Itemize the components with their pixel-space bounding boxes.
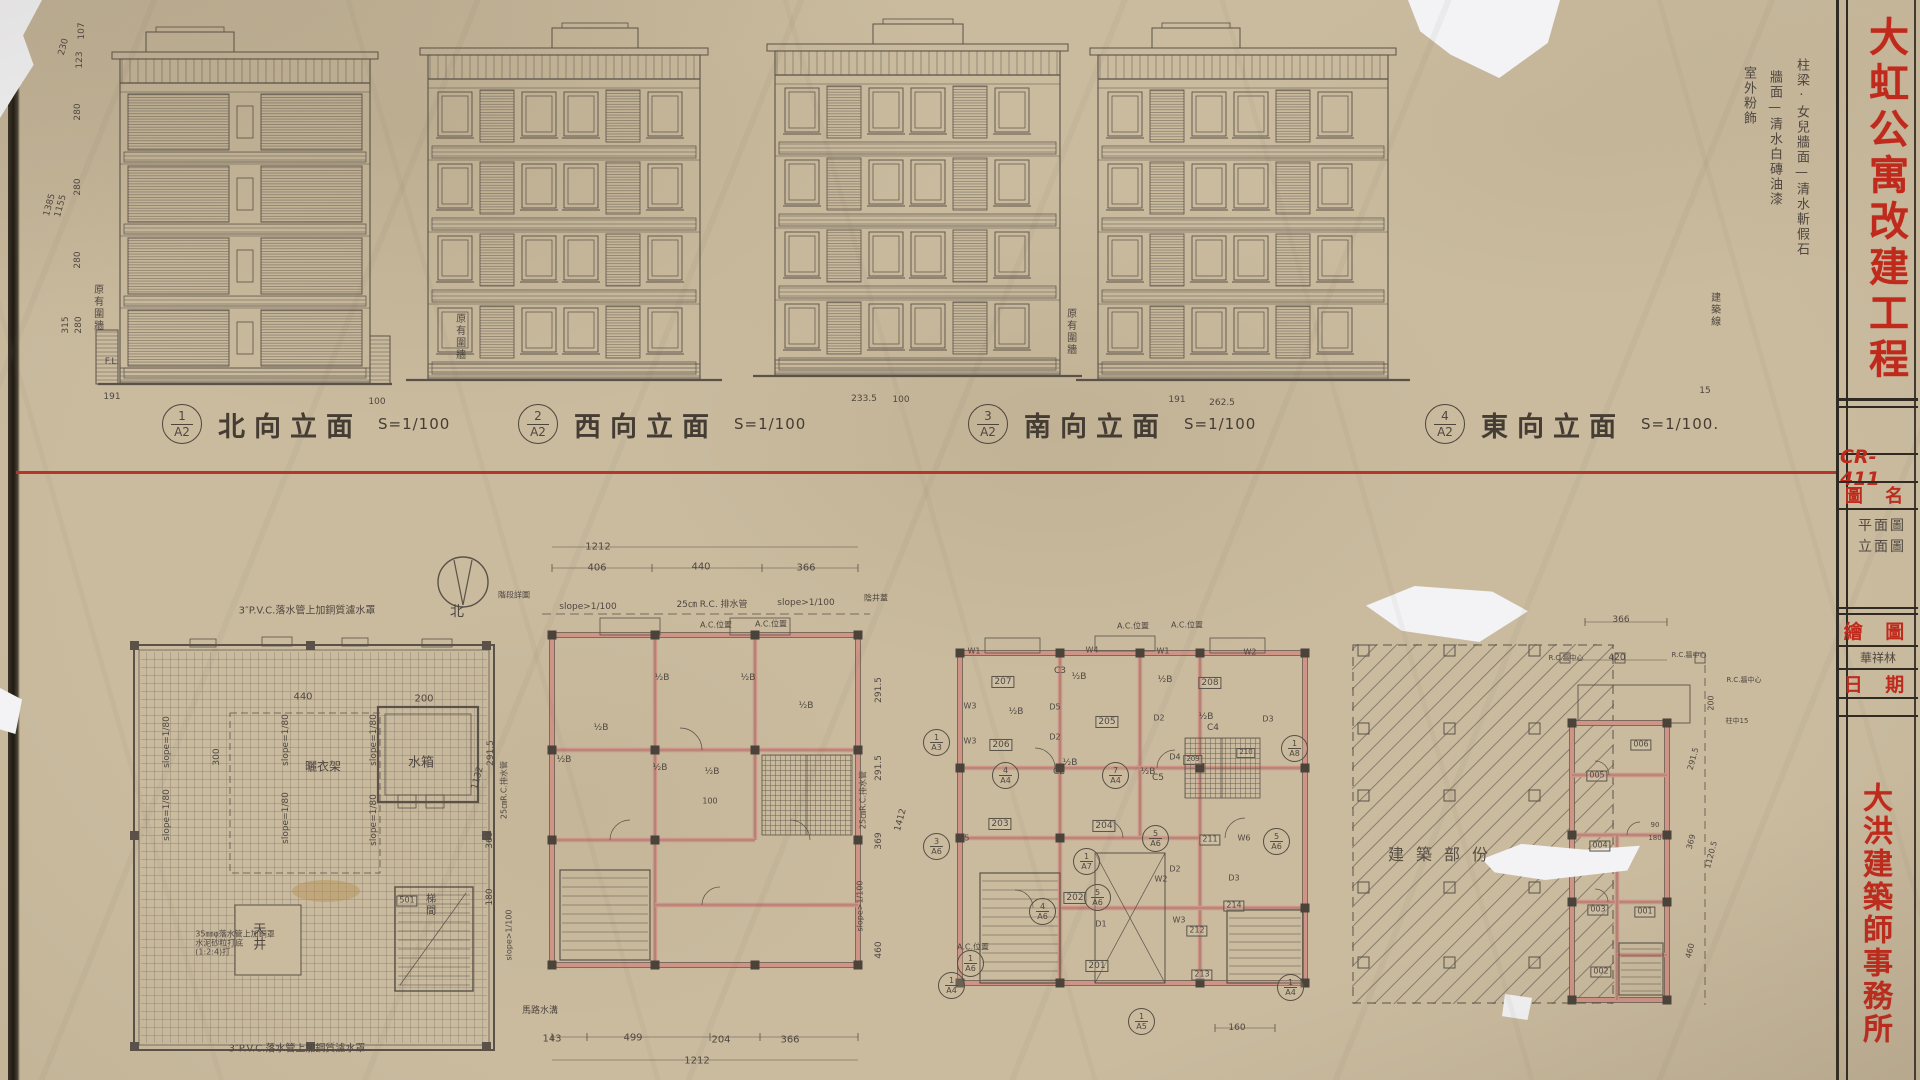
dim-under-elev: 100: [892, 395, 909, 405]
ac-label: A.C.位置: [755, 621, 787, 630]
slope-label: slope>1/100: [506, 909, 515, 960]
wall-mark: ½B: [653, 763, 668, 773]
dim-plan5: 420: [1608, 653, 1625, 663]
roof-note: 3″P.V.C.落水管上加銅質濾水罩: [239, 605, 376, 616]
wall-mark: ½B: [799, 701, 814, 711]
slope-label: slope>1/100: [777, 598, 834, 608]
slope-label: slope>1/100: [559, 602, 616, 612]
window-label: W5: [957, 835, 970, 844]
room-number: 002: [1590, 967, 1611, 978]
dim-plan5: 180: [1648, 835, 1661, 843]
north-label: 北: [450, 605, 464, 621]
ref-marker: 1A4: [1277, 974, 1304, 1001]
rc-note: 柱中15: [1726, 718, 1749, 726]
room-label: 曬衣架: [305, 760, 341, 773]
ref-marker: 5A6: [1084, 884, 1111, 911]
detail-note: 階段詳圖: [498, 592, 530, 601]
dim-left: 280: [73, 178, 83, 195]
ref-marker: 1A7: [1073, 848, 1100, 875]
door-label: D2: [1153, 715, 1164, 724]
annotations-layer: 10723012328028013851155280315280F.L.原有圍牆…: [0, 0, 1920, 1080]
dim-chain: 369: [485, 831, 495, 848]
ac-label: A.C.位置: [1171, 622, 1203, 631]
dim-plan2: 143: [542, 1033, 561, 1044]
room-number: 205: [1095, 716, 1118, 728]
dim-left: 230: [57, 37, 71, 56]
room-number: 003: [1587, 905, 1608, 916]
room-number: 209: [1183, 755, 1202, 765]
door-label: D4: [1169, 754, 1180, 763]
closet-label: C2: [1053, 767, 1065, 777]
dim-chain: 291.5: [874, 677, 884, 703]
note-building-line: 建築線: [1708, 292, 1719, 328]
room-label: 水箱: [408, 757, 434, 772]
dim-plan5: 366: [1612, 615, 1629, 625]
room-number: 001: [1634, 907, 1655, 918]
dim-plan5: 200: [1708, 695, 1717, 710]
dim-left: 280: [73, 103, 83, 120]
slope-label: slope=1/80: [281, 714, 291, 766]
window-label: W2: [1155, 876, 1168, 885]
ref-marker: 1A8: [1281, 735, 1308, 762]
dim-plan3: 160: [1228, 1023, 1245, 1033]
dim-under-elev: 191: [103, 392, 120, 402]
room-number: 212: [1186, 926, 1207, 937]
dim-chain: 1132: [470, 766, 486, 791]
dim-chain: 369: [874, 832, 884, 849]
ref-marker: 1A5: [1128, 1008, 1155, 1035]
rc-note: R.C.牆中心: [1727, 677, 1762, 685]
ref-marker: 4A6: [1029, 898, 1056, 925]
slope-label: slope=1/80: [162, 789, 172, 841]
blueprint-sheet: 1 A2 北向立面 S=1/100 2 A2 西向立面 S=1/100 3 A2…: [0, 0, 1920, 1080]
roof-dim: 440: [293, 691, 312, 702]
dim-plan5: 460: [1685, 942, 1698, 959]
window-label: W1: [1157, 648, 1170, 657]
area-label: 建築部份: [1388, 846, 1500, 864]
room-number: 204: [1092, 820, 1115, 832]
ref-marker: 1A6: [957, 950, 984, 977]
wall-mark: ½B: [1072, 672, 1087, 682]
door-label: D3: [1262, 716, 1273, 725]
room-number: 203: [988, 818, 1011, 830]
slope-label: slope=1/80: [369, 794, 379, 846]
gutter-note: 馬路水溝: [522, 1006, 558, 1016]
room-number: 201: [1085, 960, 1108, 972]
door-label: D3: [1228, 875, 1239, 884]
slope-label: slope=1/80: [281, 792, 291, 844]
wall-mark: ½B: [655, 673, 670, 683]
wall-mark: ½B: [741, 673, 756, 683]
ac-label: A.C.位置: [700, 622, 732, 631]
wall-mark: ½B: [1158, 675, 1173, 685]
ref-marker: 1A3: [923, 729, 950, 756]
window-label: W6: [1238, 835, 1251, 844]
roof-note: 35㎜φ落水管上加銅罩 水泥砂粒打底 (1:2:4)打: [195, 931, 274, 958]
dim-left: 280: [74, 316, 84, 333]
ref-marker: 1A4: [938, 972, 965, 999]
room-number: 206: [989, 739, 1012, 751]
room-number: 214: [1223, 901, 1244, 912]
dim-chain: 291.5: [486, 740, 496, 766]
dim-under-elev: 191: [1168, 395, 1185, 405]
door-label: D2: [1169, 866, 1180, 875]
wall-mark: ½B: [1009, 707, 1024, 717]
slope-label: slope=1/80: [162, 716, 172, 768]
note-existing-wall: 原有圍牆: [91, 284, 102, 332]
rc-note: R.C.牆中心: [1672, 652, 1707, 660]
door-label: D2: [1049, 734, 1060, 743]
wall-mark: ½B: [705, 767, 720, 777]
dim-left: 315: [61, 316, 71, 333]
dim-plan5: 1120.5: [1704, 840, 1720, 869]
room-number: 006: [1630, 740, 1651, 751]
dim-plan2: 366: [780, 1034, 799, 1045]
roof-dim: 300: [212, 748, 222, 765]
room-label: 501: [396, 896, 417, 907]
ac-label: A.C.位置: [1117, 623, 1149, 632]
window-label: W3: [1173, 917, 1186, 926]
level-label: F.L.: [105, 357, 119, 367]
dim-plan2: 440: [691, 561, 710, 572]
ref-marker: 4A4: [992, 762, 1019, 789]
wall-mark: ½B: [1063, 758, 1078, 768]
window-label: W2: [1244, 649, 1257, 658]
note-existing-wall: 原有圍牆: [453, 313, 464, 361]
room-number: 005: [1586, 771, 1607, 782]
ref-marker: 5A6: [1263, 828, 1290, 855]
closet-label: C4: [1207, 723, 1219, 733]
wall-mark: ½B: [557, 755, 572, 765]
dim-plan2: 366: [796, 562, 815, 573]
dim-under-elev: 262.5: [1209, 398, 1235, 408]
drain-note: 25㎝R.C.排水管: [501, 761, 510, 819]
roof-dim: 200: [414, 693, 433, 704]
window-label: W1: [968, 648, 981, 657]
dim-plan2: 204: [711, 1034, 730, 1045]
note-existing-wall: 原有圍牆: [1064, 308, 1075, 356]
rc-note: R.C.牆中心: [1549, 655, 1584, 663]
dim-plan2: 1212: [585, 541, 610, 552]
room-number: 207: [991, 676, 1014, 688]
window-label: W3: [964, 703, 977, 712]
door-label: D1: [1095, 921, 1106, 930]
window-label: W3: [964, 738, 977, 747]
room-number: 210: [1236, 748, 1255, 758]
door-label: D5: [1049, 704, 1060, 713]
dim-chain: 291.5: [874, 755, 884, 781]
wall-mark: ½B: [1141, 767, 1156, 777]
dim-plan2: 499: [623, 1032, 642, 1043]
room-number: 213: [1191, 970, 1212, 981]
room-label: 梯間: [423, 893, 434, 917]
dim-chain: 460: [874, 941, 884, 958]
dim-plan2: 406: [587, 562, 606, 573]
dim-under-elev: 100: [368, 397, 385, 407]
dim-chain: 1412: [893, 808, 909, 833]
roof-note: 3″P.V.C.落水管上加鋼質濾水罩: [229, 1043, 366, 1054]
drain-note: 25㎝R.C.排水管: [860, 771, 869, 829]
dim-plan2: 100: [702, 798, 717, 807]
window-label: W4: [1086, 647, 1099, 656]
dim-plan5: 291.5: [1687, 747, 1702, 771]
room-number: 208: [1198, 677, 1221, 689]
ref-marker: 3A6: [923, 833, 950, 860]
slope-label: slope>1/100: [857, 880, 866, 931]
ref-marker: 7A4: [1102, 762, 1129, 789]
dim-left: 280: [73, 251, 83, 268]
dim-plan5: 90: [1651, 822, 1660, 830]
slope-label: slope=1/80: [369, 714, 379, 766]
dim-plan2: 1212: [684, 1055, 709, 1066]
room-number: 004: [1589, 841, 1610, 852]
closet-label: C3: [1054, 666, 1066, 676]
drain-note: 25㎝ R.C. 排水管: [676, 600, 747, 610]
dim-under-elev: 15: [1699, 386, 1710, 396]
drain-note: 陰井蓋: [864, 595, 888, 604]
wall-mark: ½B: [594, 723, 609, 733]
ref-marker: 5A6: [1142, 825, 1169, 852]
dim-left: 123: [75, 51, 85, 68]
dim-chain: 180: [485, 888, 495, 905]
dim-left: 107: [77, 22, 87, 39]
room-number: 211: [1199, 835, 1220, 846]
dim-plan5: 369: [1686, 833, 1699, 850]
dim-under-elev: 233.5: [851, 394, 877, 404]
wall-mark: ½B: [1199, 712, 1214, 722]
